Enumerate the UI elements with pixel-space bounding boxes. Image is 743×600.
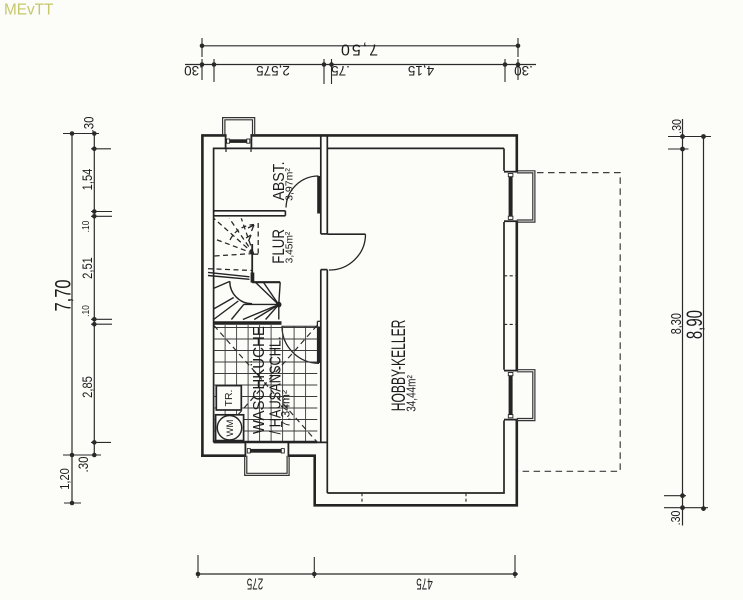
svg-text:1,20: 1,20	[57, 468, 72, 490]
svg-text:.30: .30	[82, 116, 97, 132]
svg-text:2,575: 2,575	[256, 63, 290, 78]
svg-text:TR.: TR.	[223, 390, 235, 407]
svg-text:.30: .30	[514, 63, 533, 78]
svg-text:.30: .30	[670, 119, 684, 134]
svg-text:7,50: 7,50	[339, 41, 378, 58]
svg-text:.30: .30	[76, 456, 91, 472]
svg-text:WM: WM	[225, 419, 236, 436]
svg-text:275: 275	[247, 575, 264, 593]
svg-text:.75: .75	[331, 63, 350, 78]
svg-text:.30: .30	[669, 511, 683, 526]
svg-text:34,44m²: 34,44m²	[406, 375, 419, 412]
svg-text:MEvTT: MEvTT	[4, 1, 54, 18]
svg-text:4,15: 4,15	[408, 63, 434, 78]
svg-text:.10: .10	[80, 305, 91, 317]
svg-text:.10: .10	[80, 221, 91, 233]
svg-text:7,34m²: 7,34m²	[280, 390, 293, 428]
svg-text:7,70: 7,70	[51, 279, 76, 311]
svg-text:8,90: 8,90	[682, 310, 707, 339]
svg-text:3,45m²: 3,45m²	[284, 231, 295, 263]
svg-text:1,54: 1,54	[80, 169, 95, 191]
svg-text:.30: .30	[184, 63, 203, 78]
svg-text:3,97m²: 3,97m²	[284, 168, 296, 201]
svg-text:WASCHKÜCHE: WASCHKÜCHE	[250, 326, 269, 434]
svg-text:2,85: 2,85	[80, 376, 95, 398]
svg-text:475: 475	[416, 575, 433, 593]
svg-text:2,51: 2,51	[80, 257, 95, 279]
